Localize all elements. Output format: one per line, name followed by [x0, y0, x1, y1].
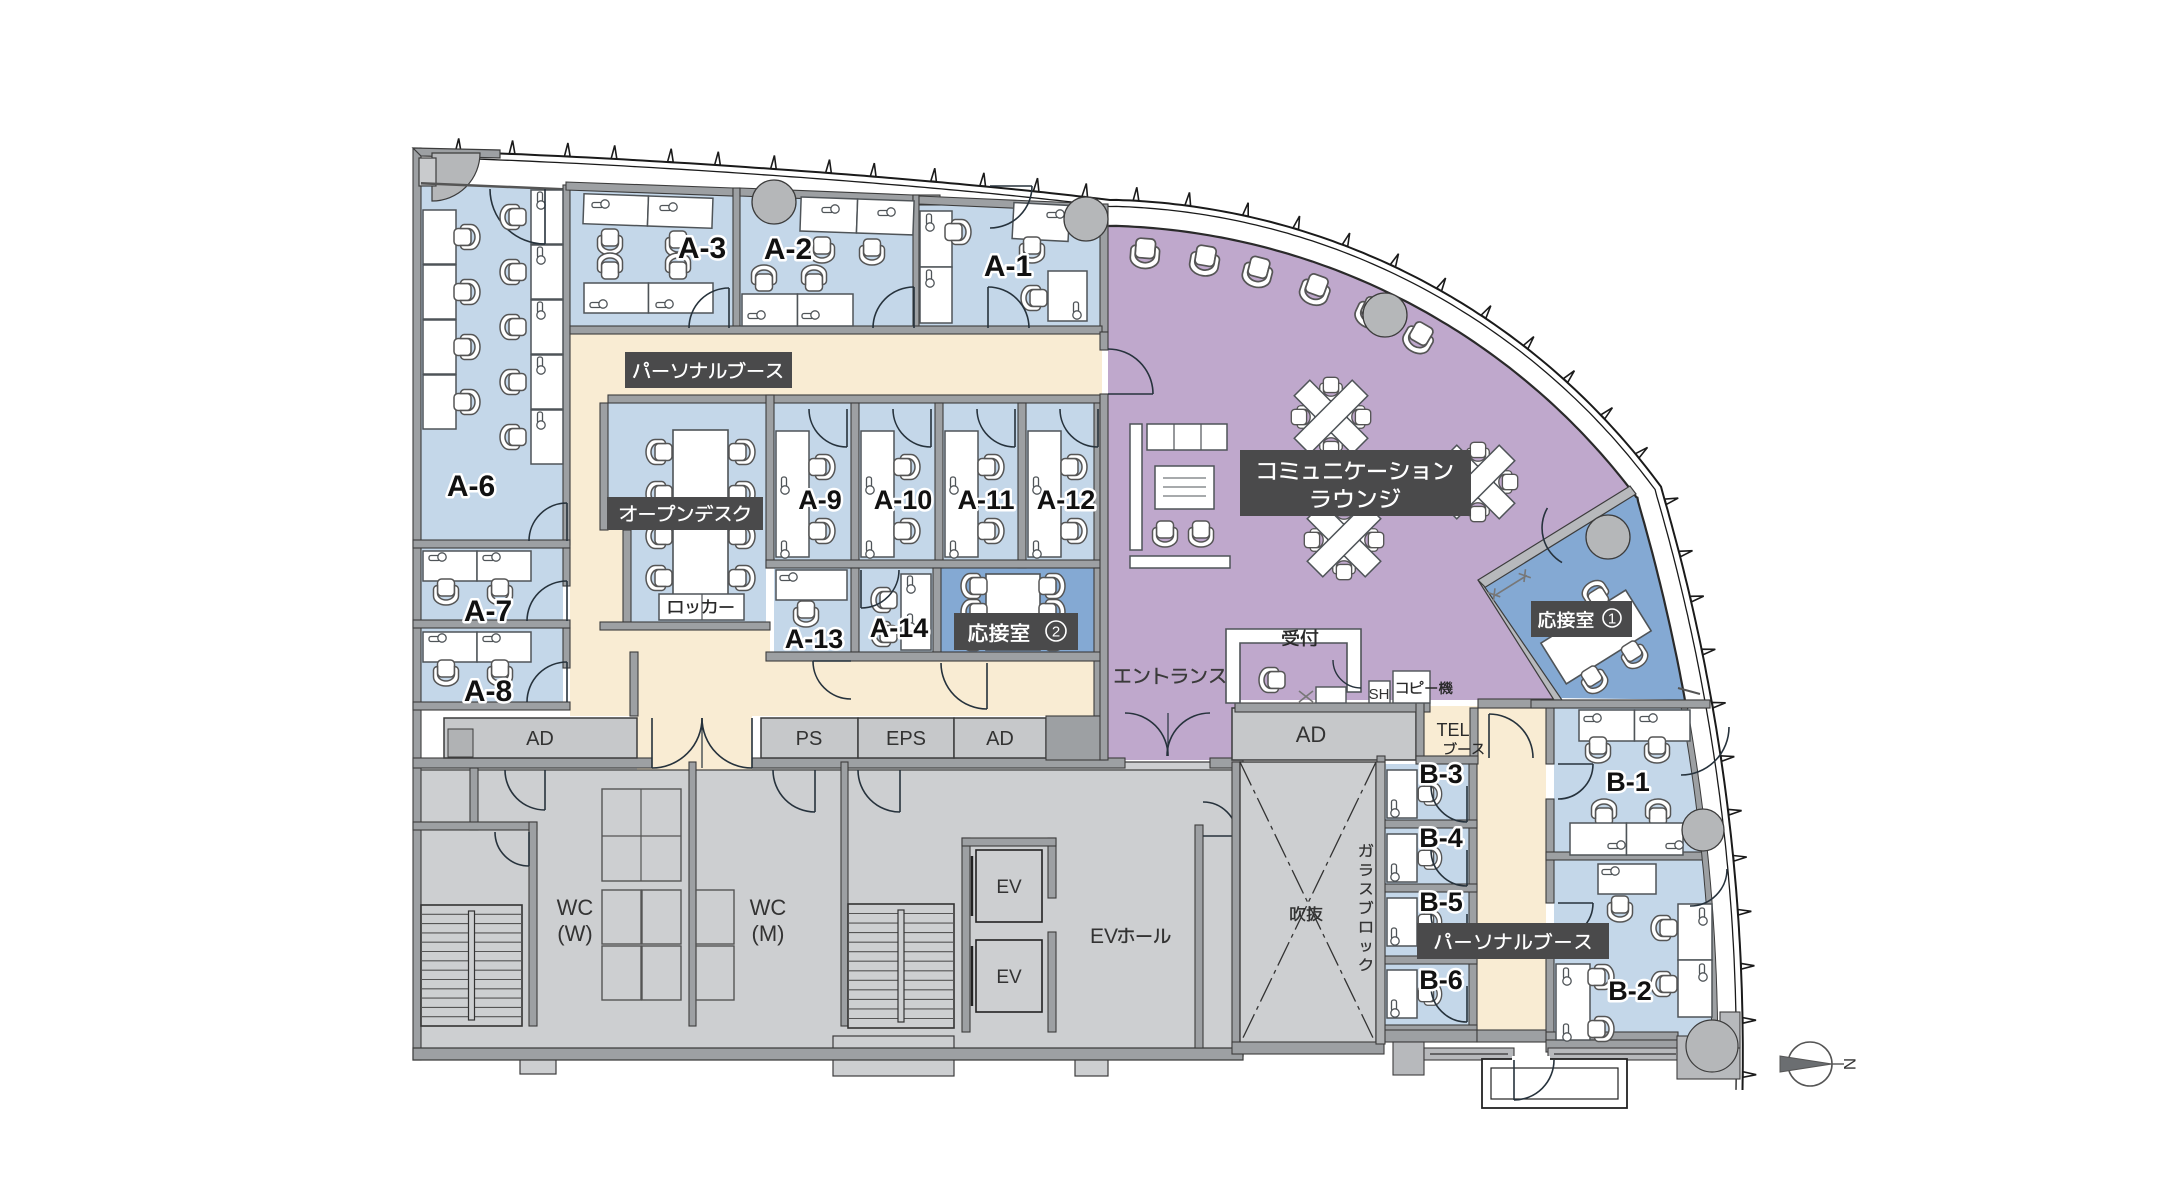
svg-text:AD: AD [986, 728, 1014, 750]
svg-text:EPS: EPS [886, 728, 926, 750]
svg-text:A-12: A-12 [1037, 485, 1096, 515]
svg-text:A-14: A-14 [870, 613, 929, 643]
svg-text:N: N [1840, 1058, 1859, 1070]
svg-text:EV: EV [996, 877, 1022, 898]
svg-text:B-1: B-1 [1606, 767, 1650, 797]
svg-text:WC: WC [750, 895, 787, 920]
svg-text:A-11: A-11 [957, 485, 1014, 515]
svg-text:2: 2 [1052, 624, 1060, 641]
svg-text:AD: AD [526, 728, 554, 750]
svg-text:(W): (W) [557, 921, 592, 946]
svg-text:B-2: B-2 [1608, 976, 1652, 1006]
svg-text:AD: AD [1296, 722, 1327, 747]
svg-text:TEL: TEL [1436, 720, 1469, 740]
svg-text:1: 1 [1608, 611, 1616, 628]
svg-text:A-7: A-7 [464, 595, 512, 628]
svg-text:B-4: B-4 [1419, 823, 1463, 853]
svg-text:A-2: A-2 [764, 233, 812, 266]
svg-text:EV: EV [996, 967, 1022, 988]
svg-text:PS: PS [796, 728, 823, 750]
svg-text:SH: SH [1369, 686, 1390, 703]
svg-text:EV: EV [1090, 925, 1118, 948]
svg-text:B-5: B-5 [1419, 887, 1463, 917]
svg-text:A-9: A-9 [798, 485, 842, 515]
svg-text:A-8: A-8 [464, 675, 512, 708]
svg-text:B-3: B-3 [1419, 759, 1463, 789]
svg-text:(M): (M) [752, 921, 785, 946]
svg-text:A-13: A-13 [785, 624, 844, 654]
svg-text:WC: WC [557, 895, 594, 920]
svg-text:A-6: A-6 [447, 470, 495, 503]
svg-text:A-3: A-3 [678, 232, 726, 265]
svg-text:A-10: A-10 [874, 485, 933, 515]
svg-text:A-1: A-1 [984, 250, 1032, 283]
svg-text:B-6: B-6 [1419, 965, 1463, 995]
